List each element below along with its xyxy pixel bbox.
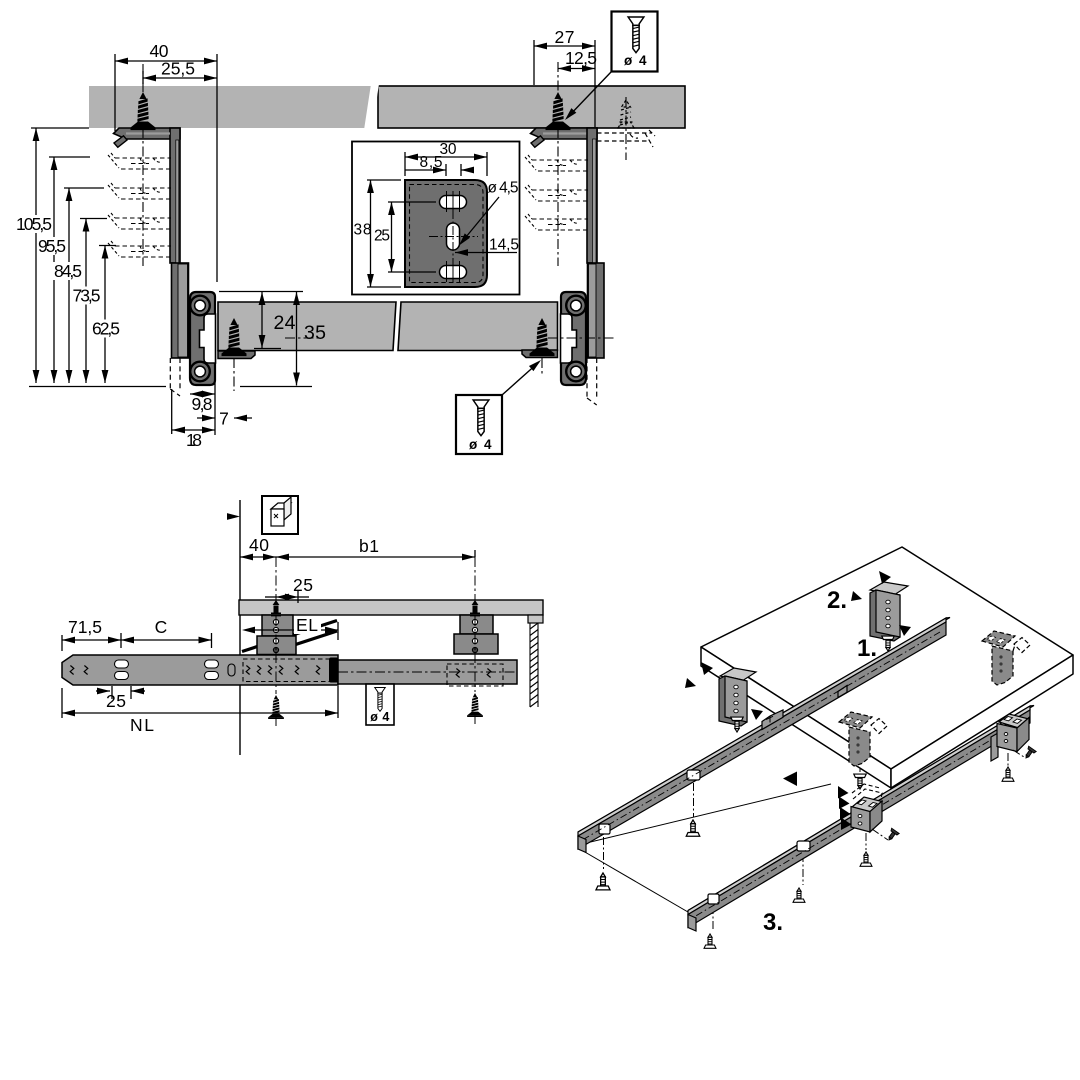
svg-text:25: 25 [374, 228, 390, 245]
svg-text:8,5: 8,5 [420, 154, 443, 171]
svg-text:25: 25 [106, 691, 126, 711]
svg-text:14,5: 14,5 [489, 237, 519, 254]
svg-text:C: C [155, 617, 168, 637]
svg-text:3.: 3. [763, 909, 783, 936]
svg-text:105,5: 105,5 [16, 214, 52, 234]
svg-text:25,5: 25,5 [161, 59, 195, 79]
svg-text:38: 38 [354, 222, 372, 239]
svg-text:9,8: 9,8 [192, 394, 213, 414]
svg-text:ø 4: ø 4 [370, 710, 390, 724]
svg-text:2.: 2. [827, 587, 847, 614]
svg-text:24: 24 [274, 312, 296, 334]
svg-text:ø 4,5: ø 4,5 [488, 180, 519, 197]
svg-text:62,5: 62,5 [92, 319, 120, 339]
svg-text:84,5: 84,5 [54, 261, 82, 281]
svg-text:35: 35 [304, 322, 326, 344]
svg-text:b1: b1 [359, 536, 379, 556]
svg-text:NL: NL [130, 715, 154, 735]
svg-text:71,5: 71,5 [68, 617, 102, 637]
svg-text:95,5: 95,5 [38, 236, 66, 256]
svg-text:40: 40 [249, 535, 269, 555]
svg-text:ø 4: ø 4 [624, 53, 648, 68]
svg-text:ø 4: ø 4 [469, 437, 493, 452]
svg-text:7: 7 [219, 409, 229, 429]
svg-text:1.: 1. [857, 635, 877, 662]
svg-text:12,5: 12,5 [565, 48, 597, 68]
svg-text:73,5: 73,5 [73, 286, 101, 306]
svg-text:EL: EL [296, 615, 318, 635]
svg-text:27: 27 [555, 27, 575, 47]
svg-text:18: 18 [186, 430, 202, 450]
svg-text:25: 25 [293, 575, 313, 595]
